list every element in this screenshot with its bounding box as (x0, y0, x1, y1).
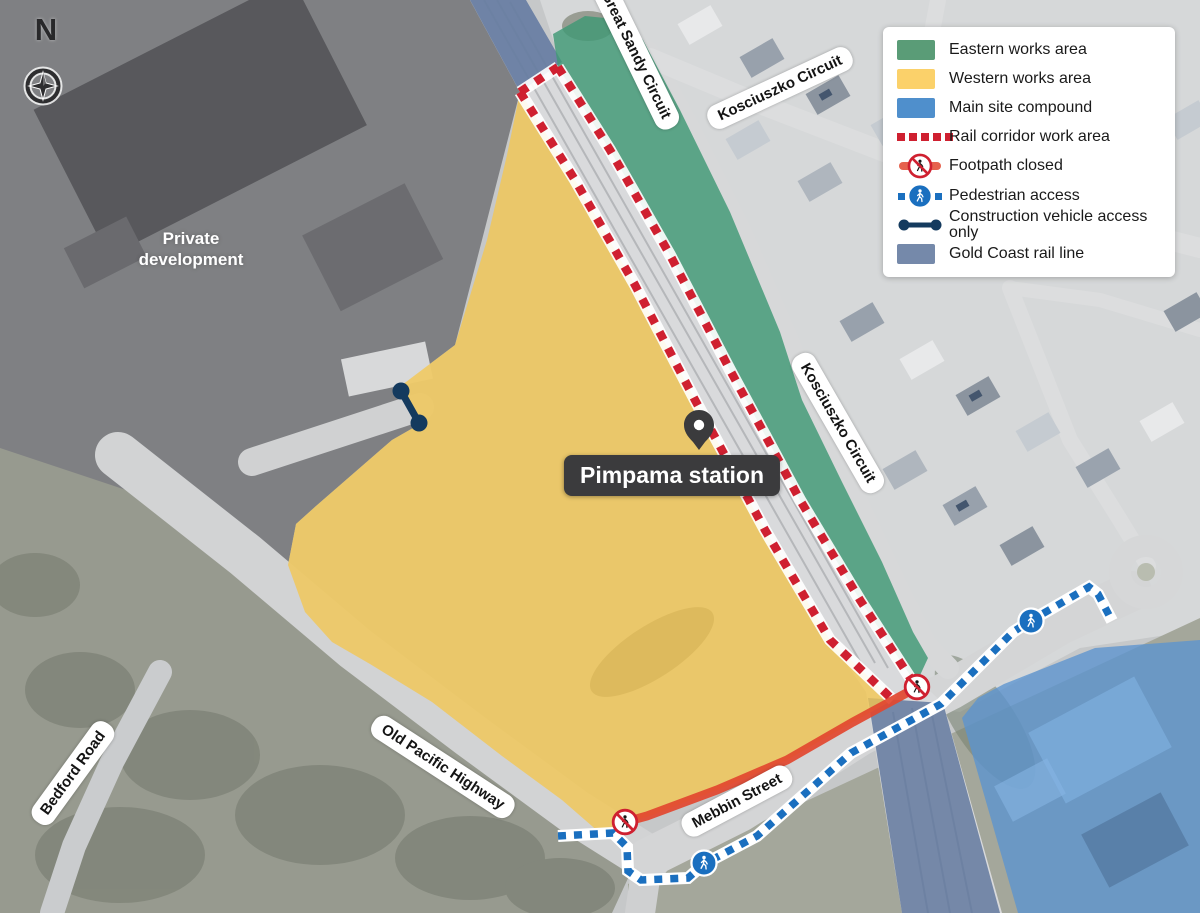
legend-item-rail-corridor: Rail corridor work area (897, 123, 1175, 152)
footpath-closed-icon (905, 675, 929, 699)
legend-label: Western works area (949, 71, 1091, 87)
legend-item-western-works: Western works area (897, 64, 1175, 93)
red-dashed-line-icon (897, 133, 953, 141)
pedestrian-access-icon (897, 182, 943, 210)
legend-item-main-site-compound: Main site compound (897, 93, 1175, 122)
footpath-closed-icon (897, 152, 943, 180)
legend-label: Pedestrian access (949, 188, 1080, 204)
western-works-swatch-icon (897, 69, 935, 89)
legend-item-eastern-works: Eastern works area (897, 35, 1175, 64)
private-development-label: Private development (139, 228, 244, 271)
map-legend: Eastern works area Western works area Ma… (883, 27, 1175, 277)
legend-label: Eastern works area (949, 42, 1087, 58)
construction-access-line-icon (897, 211, 943, 239)
legend-label: Construction vehicle access only (949, 209, 1175, 241)
north-compass-icon (28, 71, 59, 102)
legend-label: Footpath closed (949, 158, 1063, 174)
legend-item-construction-access: Construction vehicle access only (897, 210, 1175, 239)
site-map-canvas: Great Sandy Circuit Kosciuszko Circuit K… (0, 0, 1200, 913)
legend-item-footpath-closed: Footpath closed (897, 152, 1175, 181)
legend-item-pedestrian-access: Pedestrian access (897, 181, 1175, 210)
pedestrian-access-icon (1018, 608, 1043, 633)
private-development-line2: development (139, 250, 244, 269)
gold-coast-rail-swatch-icon (897, 244, 935, 264)
compass-north-label: N (18, 14, 74, 45)
compass: N (18, 14, 74, 45)
eastern-works-swatch-icon (897, 40, 935, 60)
footpath-closed-icon (613, 810, 637, 834)
main-site-compound-swatch-icon (897, 98, 935, 118)
legend-label: Gold Coast rail line (949, 246, 1084, 262)
legend-item-gold-coast-rail: Gold Coast rail line (897, 239, 1175, 268)
pedestrian-access-icon (691, 850, 716, 875)
private-development-line1: Private (163, 229, 220, 248)
legend-label: Main site compound (949, 100, 1092, 116)
station-label: Pimpama station (564, 455, 780, 496)
legend-label: Rail corridor work area (949, 129, 1110, 145)
